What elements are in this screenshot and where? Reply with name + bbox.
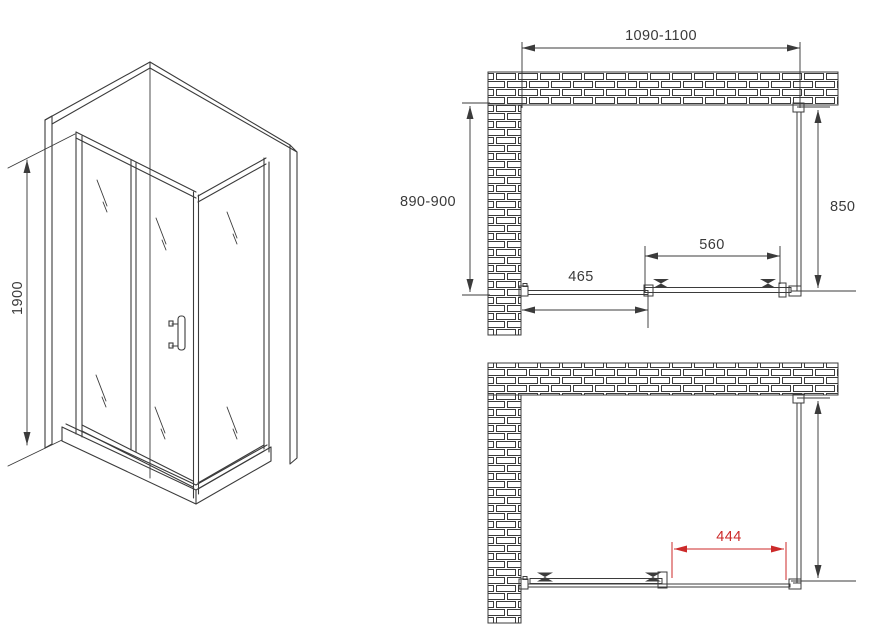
wall-hatch-top-band [488,72,838,105]
opening-width-dim-label: 444 [716,529,741,545]
iso-shower-tray [62,424,271,504]
roller-icon [760,279,776,288]
wall-hatch-left-column [488,105,521,335]
plan-bottom-view: 444 [488,363,856,623]
roller-icon [653,279,669,288]
roller-icon [537,573,553,582]
wall-hatch-left-column [488,395,521,623]
fixed-panel-dim-label: 465 [568,269,593,285]
technical-drawing: 1900 [0,0,871,640]
side-panel-dim-label: 850 [830,199,855,215]
door-width-dim-label: 560 [699,237,724,253]
wall-hatch-top-band [488,363,838,395]
plan-top-view: 1090-1100 890-900 850 560 [400,28,856,335]
plan-bottom-door-assembly [519,572,801,589]
dim-fixed-panel [522,292,648,328]
overall-width-dim-label: 1090-1100 [625,28,697,44]
iso-glass-marks [96,180,237,439]
roller-icon [645,573,661,582]
overall-depth-dim-label: 890-900 [400,194,456,210]
dim-opening-width [672,542,786,580]
plan-top-door-assembly [519,279,801,297]
iso-height-dim-label: 1900 [10,281,26,315]
plan-top-side-panel [793,103,804,291]
plan-bottom-side-panel [793,394,804,583]
dim-overall-depth [462,103,490,295]
iso-right-wall [150,62,297,478]
iso-left-wall [45,62,150,448]
iso-door-handle [169,316,185,350]
iso-frame [76,132,269,498]
iso-view: 1900 [8,62,297,504]
technical-drawing-page: 1900 [0,0,871,640]
